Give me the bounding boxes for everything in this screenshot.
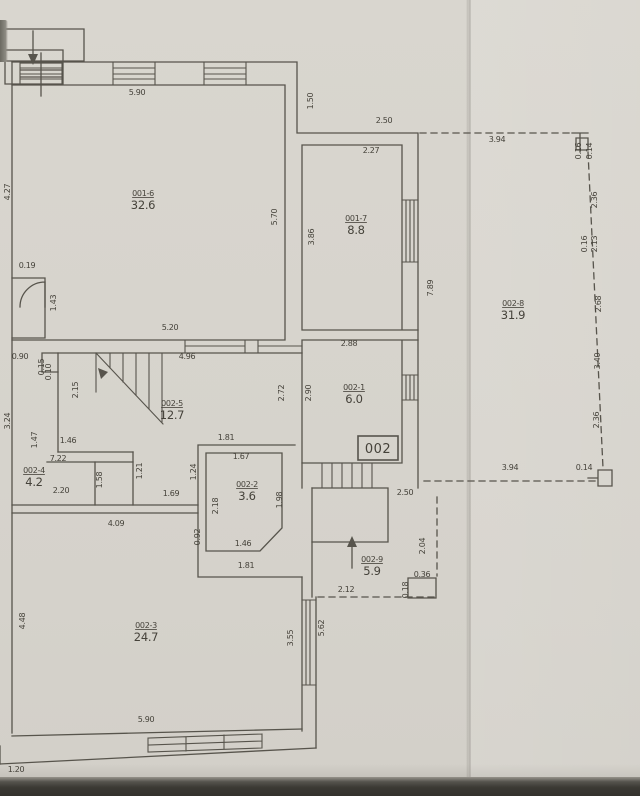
dimension-label: 1.81	[238, 561, 255, 570]
dimension-label: 0.16	[580, 235, 589, 252]
interior-walls	[12, 85, 436, 731]
dimension-label: 2.12	[338, 585, 355, 594]
dimension-label: 3.55	[286, 629, 295, 646]
room-code-label: 002-5	[161, 399, 183, 408]
room-code-label: 001-7	[345, 214, 367, 223]
dimension-label: 2.72	[277, 384, 286, 401]
dimension-label: 1.98	[275, 491, 284, 508]
dimension-label: 0.90	[12, 352, 29, 361]
dimension-label: 4.48	[18, 612, 27, 629]
dimension-label: 2.50	[376, 116, 393, 125]
dashed-boundary	[318, 133, 603, 597]
dimension-label: 2.13	[590, 235, 599, 252]
windows	[20, 62, 418, 752]
dimension-label: 2.18	[211, 497, 220, 514]
dimension-label: 2.50	[397, 488, 414, 497]
dimension-label: 1.50	[306, 92, 315, 109]
dimension-label: 3.40	[593, 352, 602, 369]
floor-plan-photo: 002 001-632.6001-78.8002-831.9002-512.70…	[0, 0, 640, 796]
dimension-label: 1.67	[233, 452, 250, 461]
dimension-label: 5.62	[317, 619, 326, 636]
dimension-label: 1.58	[95, 471, 104, 488]
boundary-corner-marks	[572, 133, 612, 486]
dimension-label: 0.10	[44, 363, 53, 380]
room-area-label: 6.0	[345, 392, 362, 406]
exterior-walls	[0, 62, 418, 764]
dimension-label: 2.20	[53, 486, 70, 495]
dimension-label: 0.18	[401, 581, 410, 598]
stairs	[96, 353, 163, 424]
dimension-label: 5.70	[270, 208, 279, 225]
room-code-label: 002-3	[135, 621, 157, 630]
dimension-label: 5.90	[138, 715, 155, 724]
room-code-label: 002-1	[343, 383, 365, 392]
room-area-label: 32.6	[131, 198, 155, 212]
dimension-label: 0.36	[414, 570, 431, 579]
paper-crease	[469, 0, 471, 777]
dimension-label: 1.46	[60, 436, 77, 445]
dimension-label: 4.09	[108, 519, 125, 528]
dimension-label: 2.36	[592, 411, 601, 428]
room-area-label: 8.8	[347, 223, 364, 237]
room-code-label: 001-6	[132, 189, 154, 198]
room-code-label: 002-4	[23, 466, 45, 475]
room-code-label: 002-8	[502, 299, 524, 308]
dimension-label: 3.24	[3, 412, 12, 429]
dimension-label: 3.86	[307, 228, 316, 245]
dimension-label: 1.43	[49, 294, 58, 311]
dimension-label: 2.68	[594, 295, 603, 312]
photo-corner-shadow	[0, 20, 8, 62]
room-area-label: 5.9	[363, 564, 380, 578]
dimension-label: 0.92	[193, 528, 202, 545]
floor-plan-drawing: 002 001-632.6001-78.8002-831.9002-512.70…	[0, 0, 640, 796]
dimension-label: 7.89	[426, 279, 435, 296]
dimension-label: 1.47	[30, 431, 39, 448]
dimension-label: 1.69	[163, 489, 180, 498]
dimension-label: 3.94	[502, 463, 519, 472]
room-code-label: 002-9	[361, 555, 383, 564]
room-code-label: 002-2	[236, 480, 258, 489]
room-labels: 001-632.6001-78.8002-831.9002-512.7002-1…	[23, 189, 525, 644]
dimension-label: 0.16	[574, 142, 583, 159]
dimension-label: 5.90	[129, 88, 146, 97]
dimension-label: 3.94	[489, 135, 506, 144]
room-area-label: 4.2	[25, 475, 42, 489]
dimension-label: 2.88	[341, 339, 358, 348]
photo-bottom-strip	[0, 777, 640, 796]
dimension-label: 0.14	[585, 142, 594, 159]
dimension-label: 7.22	[50, 454, 67, 463]
door-arc	[20, 282, 45, 307]
room-area-label: 12.7	[160, 408, 184, 422]
dimension-label: 1.24	[189, 463, 198, 480]
dimension-label: 4.96	[179, 352, 196, 361]
dimension-label: 0.19	[19, 261, 36, 270]
dimension-labels: 5.901.502.502.273.940.160.144.275.703.86…	[3, 88, 603, 774]
stairs-direction-arrow	[98, 368, 108, 379]
dimension-label: 1.46	[235, 539, 252, 548]
dimension-label: 5.20	[162, 323, 179, 332]
entrance-arrow-porch	[347, 536, 357, 568]
dimension-label: 2.90	[304, 384, 313, 401]
room-area-label: 31.9	[501, 308, 525, 322]
dimension-label: 4.27	[3, 183, 12, 200]
dimension-label: 2.04	[418, 537, 427, 554]
dimension-label: 2.15	[71, 381, 80, 398]
room-area-label: 24.7	[134, 630, 158, 644]
dimension-label: 2.27	[363, 146, 380, 155]
dimension-label: 1.20	[8, 765, 25, 774]
room-area-label: 3.6	[238, 489, 255, 503]
entrance-arrow-top	[28, 31, 38, 65]
dimension-label: 1.21	[135, 462, 144, 479]
dimension-label: 0.14	[576, 463, 593, 472]
unit-number-label: 002	[365, 442, 391, 457]
dimension-label: 2.36	[590, 191, 599, 208]
dimension-label: 1.81	[218, 433, 235, 442]
